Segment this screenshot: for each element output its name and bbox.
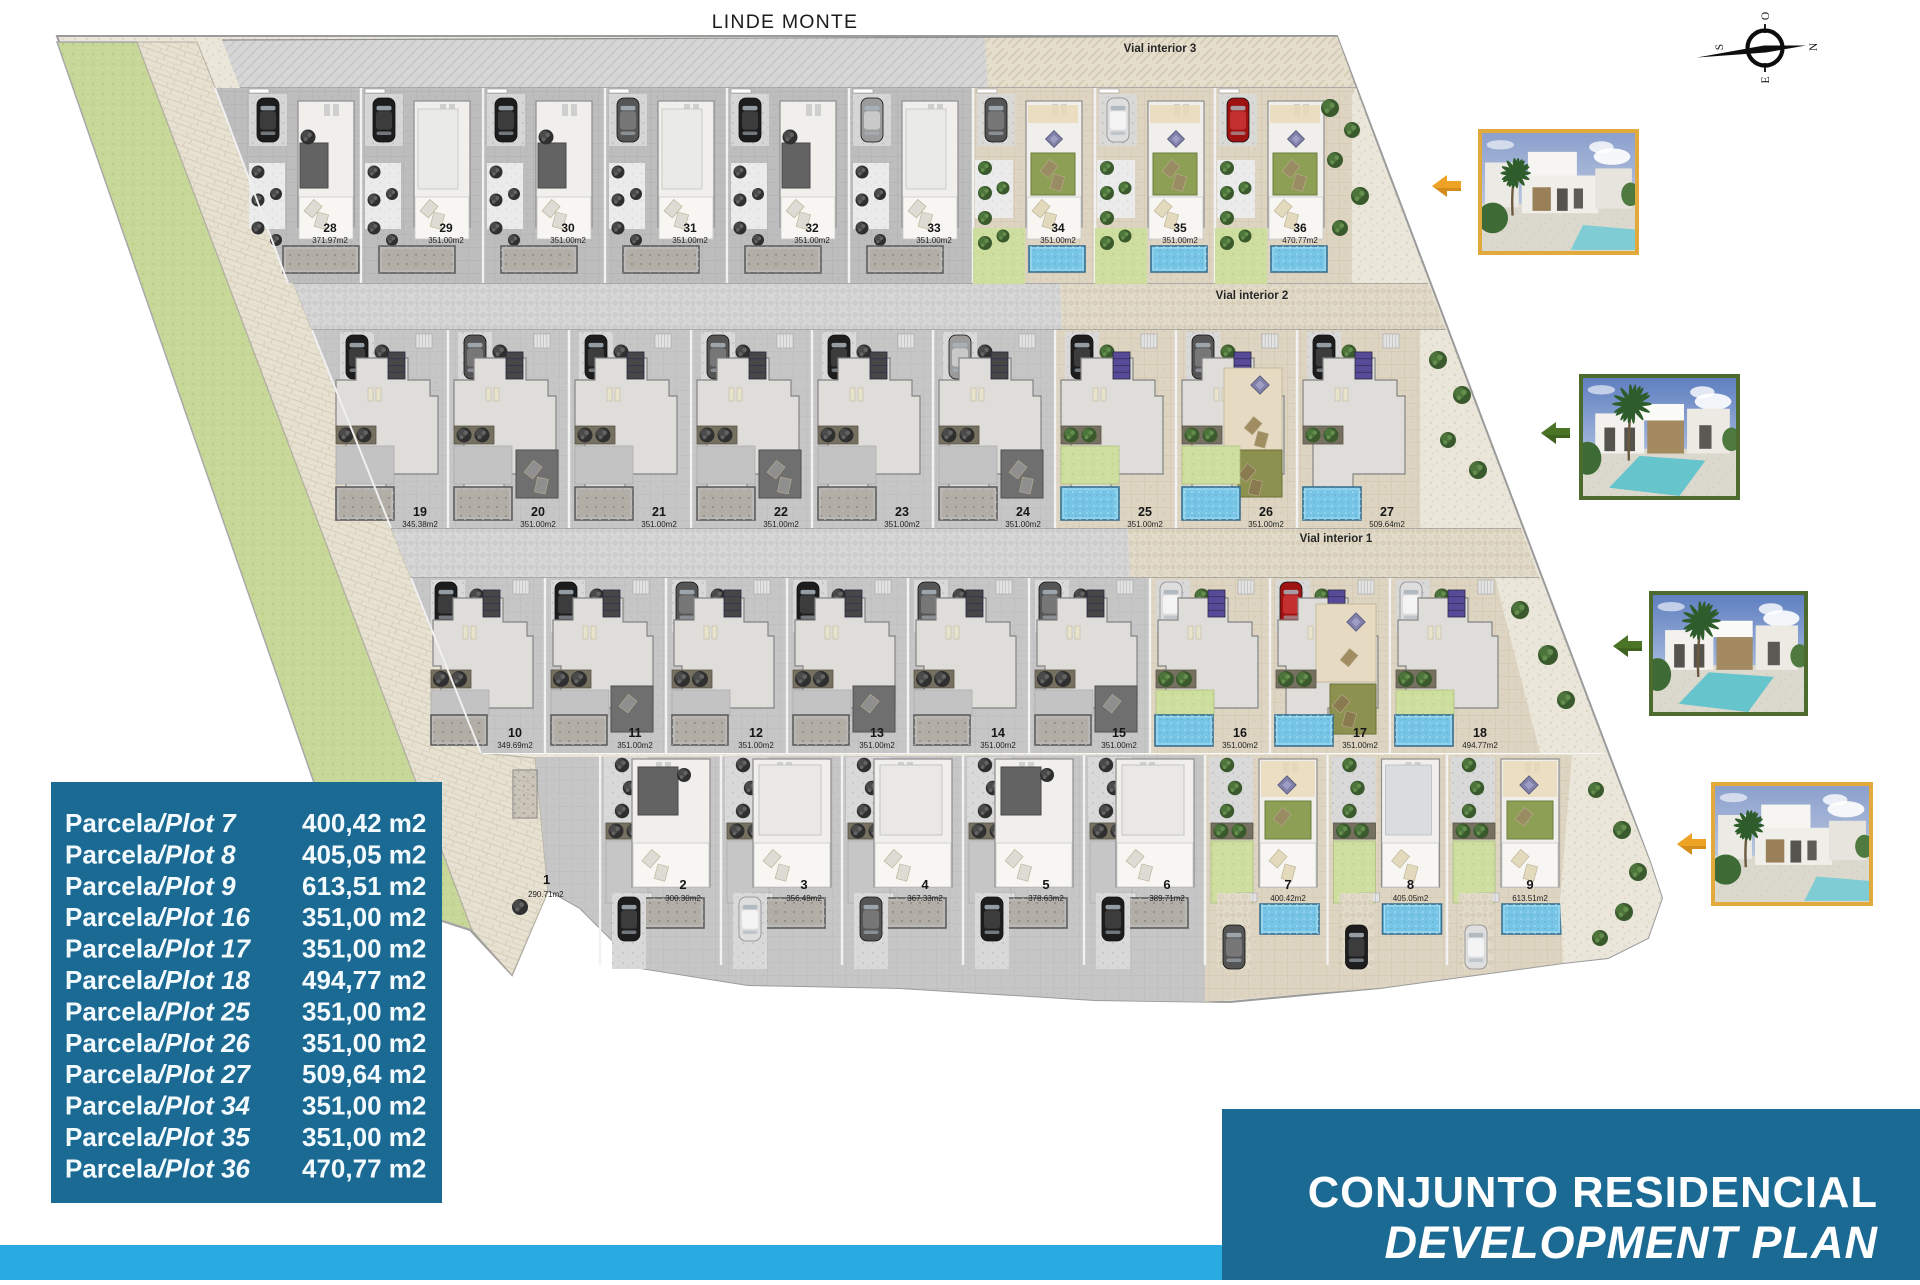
svg-text:351,00 m2: 351,00 m2 bbox=[302, 934, 426, 964]
svg-text:351.00m2: 351.00m2 bbox=[672, 236, 708, 245]
svg-text:351.00m2: 351.00m2 bbox=[859, 741, 895, 750]
svg-text:351.00m2: 351.00m2 bbox=[550, 236, 586, 245]
svg-text:8: 8 bbox=[1407, 877, 1414, 892]
svg-text:22: 22 bbox=[774, 505, 788, 519]
svg-text:389.71m2: 389.71m2 bbox=[1149, 894, 1185, 903]
svg-text:DEVELOPMENT PLAN: DEVELOPMENT PLAN bbox=[1384, 1217, 1878, 1268]
svg-text:351,00 m2: 351,00 m2 bbox=[302, 996, 426, 1026]
svg-text:613,51 m2: 613,51 m2 bbox=[302, 871, 426, 901]
svg-text:4: 4 bbox=[921, 877, 929, 892]
svg-text:290.71m2: 290.71m2 bbox=[528, 890, 564, 899]
svg-text:3: 3 bbox=[800, 877, 807, 892]
svg-text:21: 21 bbox=[652, 505, 666, 519]
svg-text:Parcela/Plot 27: Parcela/Plot 27 bbox=[65, 1059, 252, 1089]
svg-text:351.00m2: 351.00m2 bbox=[794, 236, 830, 245]
svg-text:351.00m2: 351.00m2 bbox=[763, 520, 799, 529]
svg-text:Parcela/Plot 25: Parcela/Plot 25 bbox=[65, 996, 251, 1026]
svg-text:400,42 m2: 400,42 m2 bbox=[302, 808, 426, 838]
svg-text:351,00 m2: 351,00 m2 bbox=[302, 902, 426, 932]
svg-text:12: 12 bbox=[749, 726, 763, 740]
svg-text:400.42m2: 400.42m2 bbox=[1270, 894, 1306, 903]
svg-text:351.00m2: 351.00m2 bbox=[617, 741, 653, 750]
svg-text:17: 17 bbox=[1353, 726, 1367, 740]
svg-text:33: 33 bbox=[927, 221, 941, 235]
svg-text:351.00m2: 351.00m2 bbox=[738, 741, 774, 750]
svg-text:351.00m2: 351.00m2 bbox=[641, 520, 677, 529]
svg-text:405.05m2: 405.05m2 bbox=[1393, 894, 1429, 903]
svg-text:Parcela/Plot 8: Parcela/Plot 8 bbox=[65, 839, 236, 869]
svg-text:10: 10 bbox=[508, 726, 522, 740]
svg-text:26: 26 bbox=[1259, 505, 1273, 519]
svg-text:470,77 m2: 470,77 m2 bbox=[302, 1153, 426, 1183]
svg-text:19: 19 bbox=[413, 505, 427, 519]
svg-text:5: 5 bbox=[1042, 877, 1049, 892]
svg-text:Parcela/Plot 35: Parcela/Plot 35 bbox=[65, 1122, 251, 1152]
svg-text:31: 31 bbox=[683, 221, 697, 235]
svg-text:Parcela/Plot 17: Parcela/Plot 17 bbox=[65, 934, 252, 964]
svg-text:Vial interior 3: Vial interior 3 bbox=[1124, 43, 1197, 55]
svg-text:300.30m2: 300.30m2 bbox=[665, 894, 701, 903]
svg-text:CONJUNTO RESIDENCIAL: CONJUNTO RESIDENCIAL bbox=[1308, 1169, 1878, 1217]
svg-text:E: E bbox=[1760, 76, 1772, 83]
svg-text:367.33m2: 367.33m2 bbox=[907, 894, 943, 903]
svg-text:351.00m2: 351.00m2 bbox=[520, 520, 556, 529]
svg-text:351.00m2: 351.00m2 bbox=[1222, 741, 1258, 750]
svg-text:29: 29 bbox=[439, 221, 453, 235]
svg-text:28: 28 bbox=[323, 221, 337, 235]
svg-text:470.77m2: 470.77m2 bbox=[1282, 236, 1318, 245]
svg-text:351.00m2: 351.00m2 bbox=[428, 236, 464, 245]
svg-text:405,05 m2: 405,05 m2 bbox=[302, 839, 426, 869]
svg-text:Vial interior 1: Vial interior 1 bbox=[1300, 533, 1373, 545]
svg-text:351.00m2: 351.00m2 bbox=[1040, 236, 1076, 245]
svg-text:1: 1 bbox=[543, 872, 550, 887]
svg-text:36: 36 bbox=[1293, 221, 1307, 235]
svg-text:34: 34 bbox=[1051, 221, 1065, 235]
svg-text:LINDE MONTE: LINDE MONTE bbox=[712, 11, 858, 33]
svg-text:18: 18 bbox=[1473, 726, 1487, 740]
svg-text:356.48m2: 356.48m2 bbox=[786, 894, 822, 903]
svg-text:351.00m2: 351.00m2 bbox=[916, 236, 952, 245]
svg-text:351.00m2: 351.00m2 bbox=[884, 520, 920, 529]
svg-text:O: O bbox=[1760, 12, 1772, 20]
svg-text:351.00m2: 351.00m2 bbox=[1127, 520, 1163, 529]
svg-text:9: 9 bbox=[1526, 877, 1533, 892]
svg-text:25: 25 bbox=[1138, 505, 1152, 519]
svg-text:351.00m2: 351.00m2 bbox=[1342, 741, 1378, 750]
svg-text:2: 2 bbox=[679, 877, 686, 892]
svg-text:351.00m2: 351.00m2 bbox=[1248, 520, 1284, 529]
svg-text:Parcela/Plot 9: Parcela/Plot 9 bbox=[65, 871, 236, 901]
svg-text:6: 6 bbox=[1163, 877, 1170, 892]
svg-text:371.97m2: 371.97m2 bbox=[312, 236, 348, 245]
svg-text:349.69m2: 349.69m2 bbox=[497, 741, 533, 750]
svg-text:Parcela/Plot 7: Parcela/Plot 7 bbox=[65, 808, 237, 838]
svg-text:11: 11 bbox=[628, 726, 641, 740]
svg-text:351,00 m2: 351,00 m2 bbox=[302, 1028, 426, 1058]
svg-text:494.77m2: 494.77m2 bbox=[1462, 741, 1498, 750]
svg-text:351.00m2: 351.00m2 bbox=[1162, 236, 1198, 245]
svg-text:27: 27 bbox=[1380, 505, 1394, 519]
svg-text:24: 24 bbox=[1016, 505, 1030, 519]
svg-text:351.00m2: 351.00m2 bbox=[1101, 741, 1137, 750]
svg-text:Parcela/Plot 18: Parcela/Plot 18 bbox=[65, 965, 251, 995]
svg-text:Vial interior 2: Vial interior 2 bbox=[1216, 290, 1289, 302]
svg-text:23: 23 bbox=[895, 505, 909, 519]
svg-text:351.00m2: 351.00m2 bbox=[1005, 520, 1041, 529]
svg-text:30: 30 bbox=[561, 221, 575, 235]
svg-text:7: 7 bbox=[1284, 877, 1291, 892]
svg-text:Parcela/Plot 16: Parcela/Plot 16 bbox=[65, 902, 251, 932]
svg-text:20: 20 bbox=[531, 505, 545, 519]
svg-text:13: 13 bbox=[870, 726, 884, 740]
svg-text:N: N bbox=[1808, 42, 1820, 51]
svg-text:494,77 m2: 494,77 m2 bbox=[302, 965, 426, 995]
svg-text:509.64m2: 509.64m2 bbox=[1369, 520, 1405, 529]
svg-text:351,00 m2: 351,00 m2 bbox=[302, 1091, 426, 1121]
svg-text:351,00 m2: 351,00 m2 bbox=[302, 1122, 426, 1152]
svg-text:16: 16 bbox=[1233, 726, 1247, 740]
svg-text:613.51m2: 613.51m2 bbox=[1512, 894, 1548, 903]
svg-text:Parcela/Plot 36: Parcela/Plot 36 bbox=[65, 1153, 251, 1183]
svg-text:15: 15 bbox=[1112, 726, 1126, 740]
svg-text:345.38m2: 345.38m2 bbox=[402, 520, 438, 529]
svg-text:35: 35 bbox=[1173, 221, 1187, 235]
svg-text:351.00m2: 351.00m2 bbox=[980, 741, 1016, 750]
svg-text:32: 32 bbox=[805, 221, 819, 235]
svg-text:S: S bbox=[1714, 44, 1726, 50]
svg-text:Parcela/Plot 34: Parcela/Plot 34 bbox=[65, 1091, 251, 1121]
svg-text:378.63m2: 378.63m2 bbox=[1028, 894, 1064, 903]
svg-text:14: 14 bbox=[991, 726, 1005, 740]
svg-text:509,64 m2: 509,64 m2 bbox=[302, 1059, 426, 1089]
svg-text:Parcela/Plot 26: Parcela/Plot 26 bbox=[65, 1028, 251, 1058]
